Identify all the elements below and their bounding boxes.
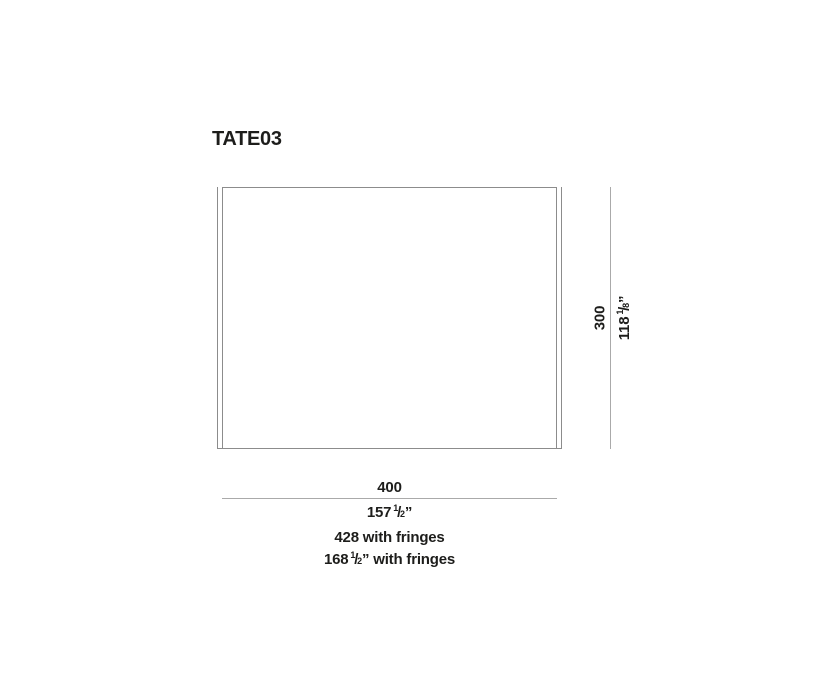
- fringe-line-left: [222, 187, 223, 449]
- height-in-main: 118: [616, 317, 633, 341]
- rug-top-edge: [222, 187, 557, 188]
- width-dimension-inches: 1571/2”: [222, 501, 557, 522]
- fringe-dimension-inches: 1681/2” with fringes: [222, 548, 557, 569]
- width-in-mark: ”: [405, 504, 412, 521]
- rug-bottom-edge: [217, 448, 562, 449]
- width-cm-value: 400: [377, 479, 401, 496]
- dimension-diagram: TATE03 300 1181/8” 400 1571/2” 428 with …: [0, 0, 840, 679]
- product-title: TATE03: [212, 128, 282, 151]
- height-in-mark: ”: [616, 296, 633, 303]
- height-dimension-cm: 300: [592, 306, 609, 330]
- rug-left-edge: [217, 187, 218, 449]
- height-dimension-inches: 1181/8”: [615, 296, 633, 341]
- height-cm-value: 300: [592, 306, 609, 330]
- width-in-main: 157: [367, 504, 391, 521]
- fringe-in-main: 168: [324, 551, 348, 568]
- rug-outline: [217, 187, 562, 449]
- fringe-cm-text: 428 with fringes: [334, 529, 444, 546]
- fringe-dimension-cm: 428 with fringes: [222, 530, 557, 545]
- fringe-line-right: [556, 187, 557, 449]
- height-in-frac-denominator: 8: [621, 303, 631, 308]
- height-dimension-line: [610, 187, 611, 449]
- width-dimension-cm: 400: [222, 480, 557, 495]
- rug-right-edge: [561, 187, 562, 449]
- width-dimension-line: [222, 498, 557, 499]
- fringe-in-suffix: ” with fringes: [362, 551, 455, 568]
